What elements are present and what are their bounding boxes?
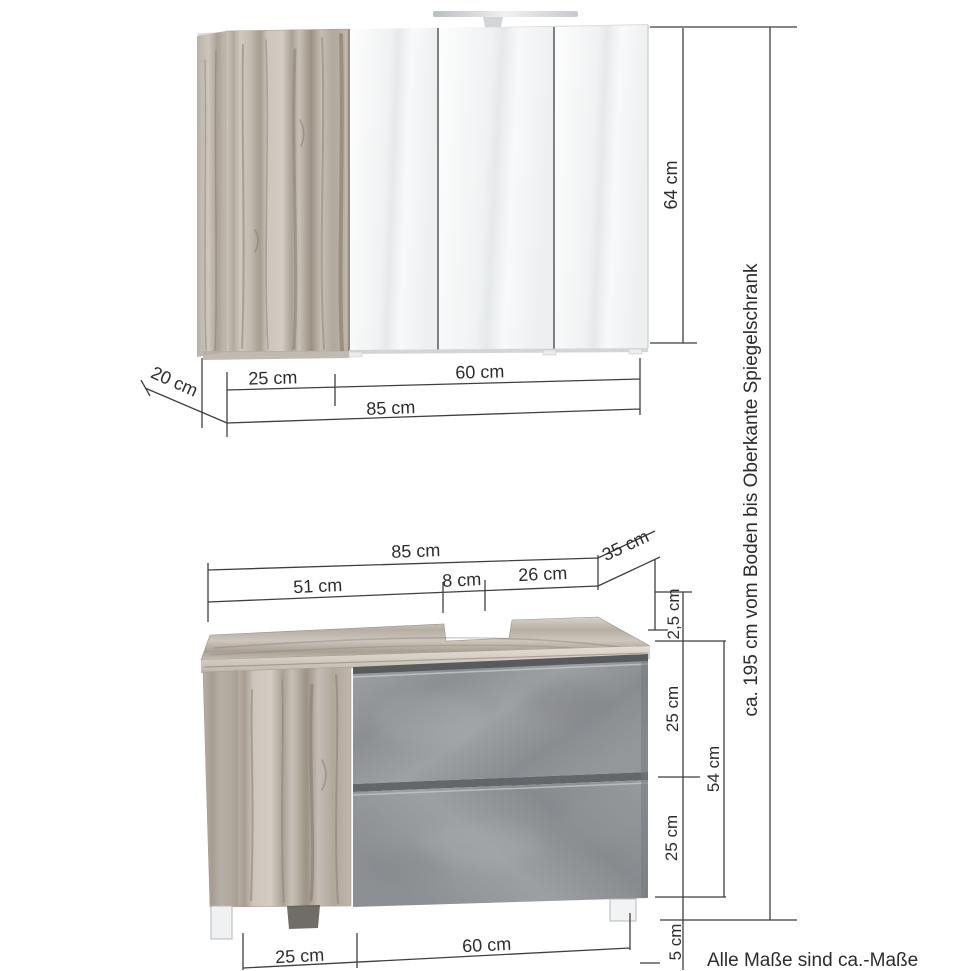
feet-height-label: 5 cm [666,924,685,961]
cabinet-bottom-fitting [543,350,556,355]
countertop-thickness-label: 2,5 cm [664,588,683,639]
mirror-total-width-label: 85 cm [366,397,416,419]
mirror-section-width-label: 60 cm [455,361,505,382]
vanity-drawer-width-label: 60 cm [462,934,512,957]
bathroom-furniture-dimension-diagram: 25 cm 60 cm 85 cm 20 cm 64 cm ca. 195 cm… [0,0,970,971]
vanity-foot-right [610,899,636,921]
mirror-door-3 [555,25,648,349]
mirror-height-label: 64 cm [661,160,681,209]
concrete-mottle [560,795,640,845]
cabinet-bottom-fitting [349,352,362,357]
vanity-total-width-label: 85 cm [391,540,441,562]
wood-grain [294,50,296,348]
vanity-door-side-shade [203,671,238,907]
concrete-mottle [523,680,607,720]
vanity-depth-label: 35 cm [599,526,652,565]
lower-drawer-height-label: 25 cm [662,815,681,861]
mirror-door-width-label: 25 cm [248,367,298,388]
mirror-door-2 [439,27,553,350]
wood-grain [311,685,313,900]
vanity-foot-front-left [211,906,232,939]
light-fixture-stem [483,17,503,27]
vanity-foot-shadow [287,905,320,929]
vanity-front-height-label: 54 cm [704,746,723,792]
vanity-right-width-label: 26 cm [518,563,568,585]
diagram-svg: 25 cm 60 cm 85 cm 20 cm 64 cm ca. 195 cm… [0,0,970,971]
cabinet-side-panel [197,31,226,357]
light-fixture-bar [433,11,578,17]
mirror-cabinet [197,11,650,360]
cabinet-bottom-fitting [629,349,642,354]
overall-height-label: ca. 195 cm vom Boden bis Oberkante Spieg… [741,263,762,717]
vanity-cabinet [201,617,650,939]
concrete-mottle [375,694,485,746]
drawer-right-edge-shade [641,661,648,898]
footnote: Alle Maße sind ca.-Maße [707,950,918,971]
vanity-door-width-label: 25 cm [275,945,325,968]
mirror-door-1 [350,28,437,351]
upper-drawer-height-label: 25 cm [663,686,682,732]
concrete-mottle [365,847,445,883]
mirror-depth-label: 20 cm [148,362,201,400]
wood-grain [341,35,342,350]
wood-grain [205,60,206,350]
vanity-cutout-width-label: 8 cm [442,569,482,591]
cabinet-wood-door [226,29,348,352]
vanity-left-width-label: 51 cm [293,575,343,597]
cabinet-bottom-shadow [203,351,349,360]
